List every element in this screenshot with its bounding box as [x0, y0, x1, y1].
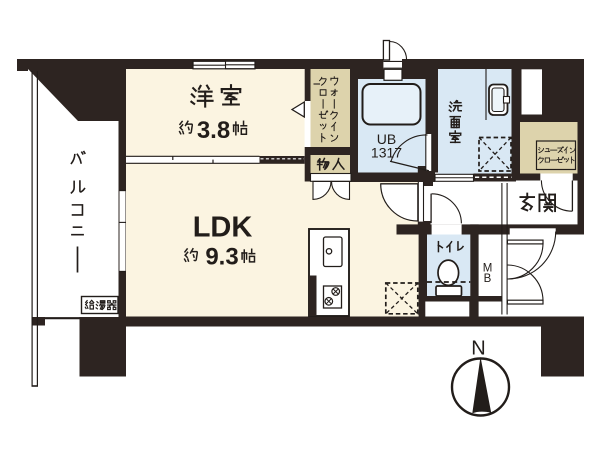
svg-text:LDK: LDK [193, 212, 253, 244]
svg-text:9.3: 9.3 [205, 244, 238, 271]
svg-text:3.8: 3.8 [197, 117, 230, 144]
svg-text:B: B [484, 273, 492, 285]
svg-text:1317: 1317 [371, 145, 402, 161]
svg-text:N: N [471, 338, 485, 360]
